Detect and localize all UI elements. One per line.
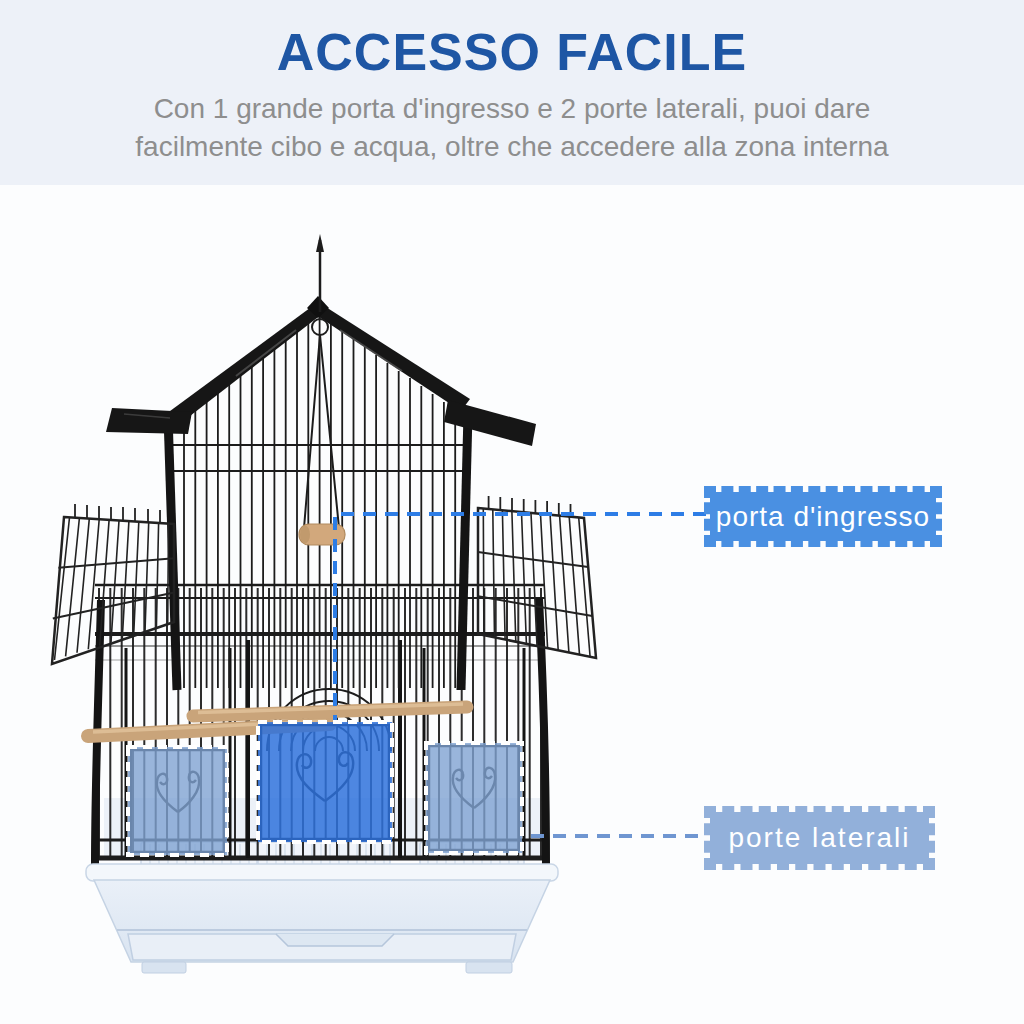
- drawer-handle: [276, 934, 394, 946]
- left-eave: [106, 408, 192, 434]
- right-eave: [444, 400, 536, 446]
- side-doors-label: porte laterali: [704, 806, 935, 870]
- tray-foot-left: [142, 962, 186, 973]
- entry-door-highlight: [258, 722, 392, 842]
- side-door-left-highlight: [128, 747, 227, 855]
- side-door-right-highlight: [426, 743, 522, 853]
- house-rails: [172, 445, 464, 471]
- swing: [299, 335, 345, 545]
- tray-foot-right: [466, 962, 512, 973]
- entry-door-label-text: porta d'ingresso: [716, 501, 930, 533]
- side-doors-label-text: porte laterali: [728, 822, 910, 854]
- base-tray: [86, 864, 558, 973]
- entry-door-callout-line: [335, 514, 706, 720]
- entry-door-label: porta d'ingresso: [704, 486, 942, 547]
- product-scene: porta d'ingresso porte laterali: [0, 0, 1024, 1024]
- door-highlights: [128, 722, 522, 855]
